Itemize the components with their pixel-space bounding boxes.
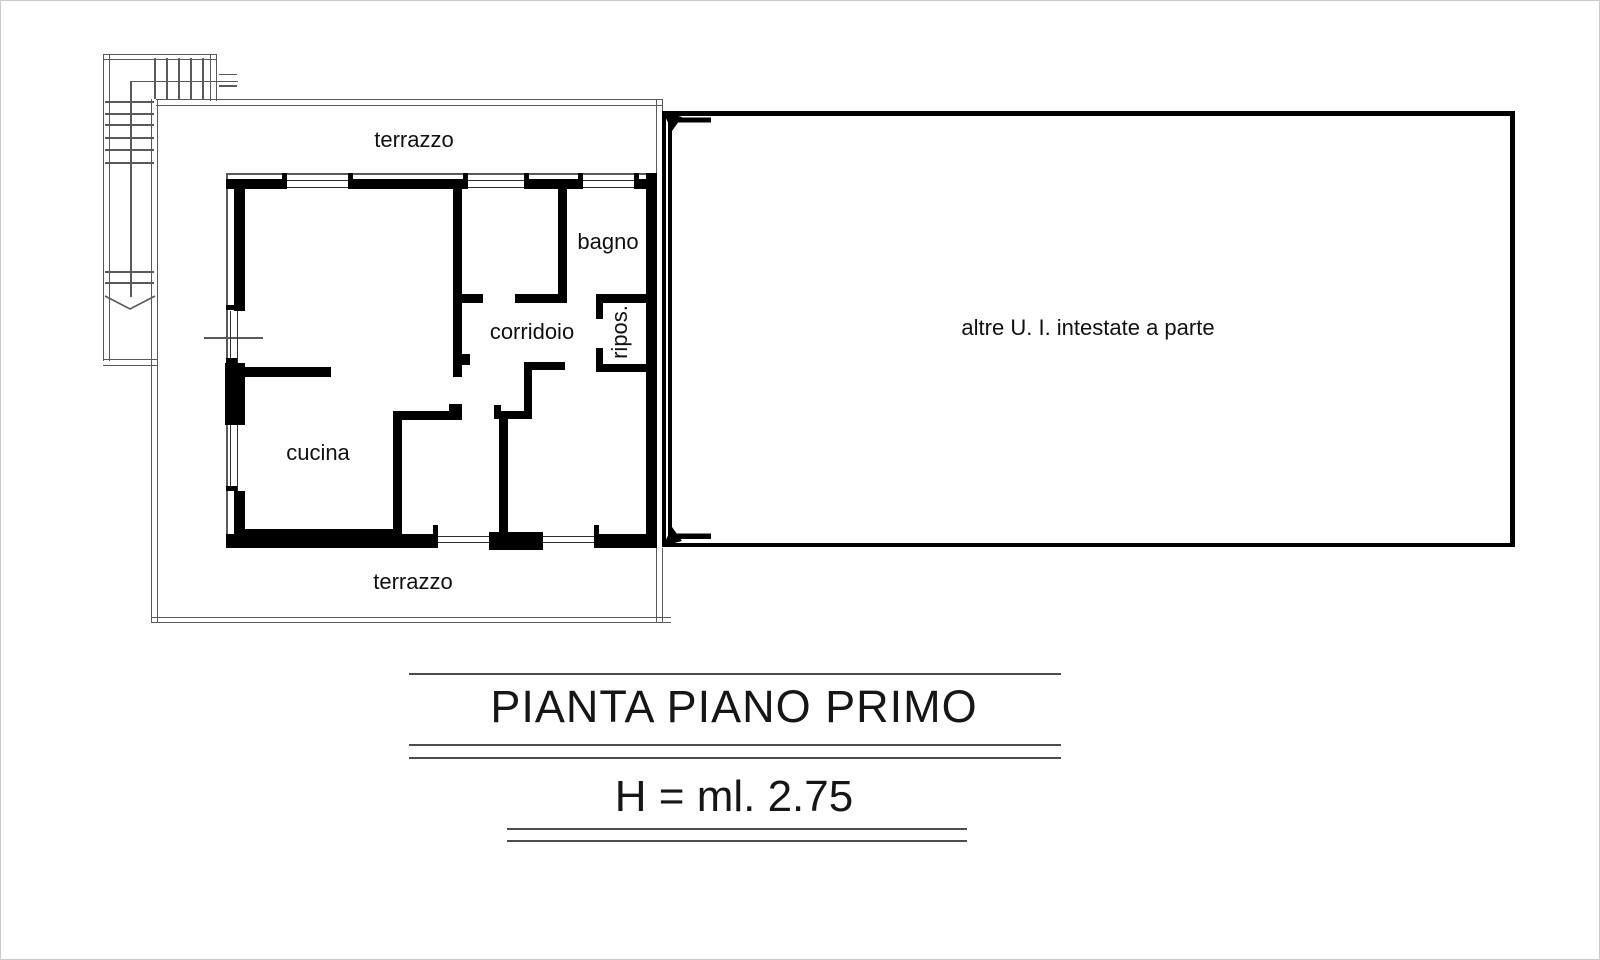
window-jamb	[634, 173, 639, 179]
wall-room1-north	[393, 411, 462, 420]
door-jamb	[433, 525, 438, 534]
door-threshold	[438, 536, 489, 543]
window-jamb	[226, 486, 237, 491]
stair-outline-bottom	[103, 359, 157, 366]
window-jamb	[348, 173, 353, 179]
door-jamb	[594, 525, 599, 534]
title-rule	[409, 744, 1061, 746]
window	[287, 180, 348, 188]
window-jamb	[282, 173, 287, 179]
terrace-boundary-bottom	[152, 617, 671, 624]
window-jamb	[524, 173, 529, 179]
room-label-terrazzo-top: terrazzo	[374, 127, 453, 153]
wall	[348, 179, 468, 189]
wall-inner-lip	[238, 529, 393, 535]
adjacent-units-label: altre U. I. intestate a parte	[961, 315, 1214, 341]
adjacent-bottom-edge	[662, 543, 1514, 548]
door-jamb	[462, 354, 470, 365]
terrace-boundary-top	[156, 99, 662, 106]
height-note: H = ml. 2.75	[615, 772, 853, 822]
wall-pier	[489, 532, 543, 550]
stair-walk-line-vertical	[130, 81, 132, 297]
stair-tread	[202, 58, 204, 99]
window-jamb	[226, 420, 237, 425]
stair-outline-right-upper	[210, 54, 217, 101]
wall-room1-west	[393, 420, 402, 534]
wall-livingroom-east	[453, 187, 462, 377]
storage-door-jamb-top	[596, 303, 603, 319]
wall-kitchen-north	[238, 367, 331, 377]
title-rule	[409, 673, 1061, 675]
terrace-boundary-right-lower	[656, 548, 663, 623]
window	[230, 425, 238, 491]
wall	[226, 534, 438, 548]
height-rule	[507, 828, 967, 830]
stair-outline-top	[103, 54, 216, 60]
stair-tread	[190, 58, 192, 99]
window-jamb	[463, 173, 468, 179]
door-jamb	[494, 405, 501, 412]
wall	[594, 534, 657, 548]
wall-bathroom-west	[558, 187, 567, 303]
terrace-boundary-left	[151, 99, 158, 623]
floor-plan-canvas: terrazzo bagno corridoio ripos. cucina t…	[0, 0, 1600, 960]
stair-walk-line-horizontal	[130, 81, 238, 83]
wall	[234, 179, 245, 311]
wall-storage-south	[596, 364, 646, 372]
wall	[524, 179, 583, 189]
window-jamb	[226, 358, 237, 363]
stair-start-tick	[219, 85, 237, 87]
door-jamb	[449, 404, 462, 411]
room-label-ripostiglio: ripos.	[607, 305, 633, 359]
window	[230, 311, 238, 363]
stair-tread	[154, 58, 156, 99]
adjacent-left-edge-inner	[662, 111, 666, 547]
wall-bedroom2-west-lower	[499, 419, 508, 534]
wall-bathroom-south	[596, 294, 646, 303]
wall	[646, 173, 657, 548]
window-jamb	[226, 305, 237, 310]
title-rule	[409, 757, 1061, 759]
wall-bedroom2-west-stub	[494, 411, 532, 419]
room-label-bagno: bagno	[577, 229, 638, 255]
adjacent-top-edge	[662, 111, 1514, 116]
room-label-terrazzo-bottom: terrazzo	[373, 569, 452, 595]
room-label-corridoio: corridoio	[490, 319, 574, 345]
room-label-cucina: cucina	[286, 440, 350, 466]
wall-corridor-north-west-stub	[453, 294, 483, 303]
drawing-title: PIANTA PIANO PRIMO	[490, 681, 977, 733]
window-jamb	[578, 173, 583, 179]
stair-break-chevron	[105, 296, 155, 309]
wall-face-top	[226, 173, 657, 175]
stair-start-tick	[219, 74, 237, 76]
stair-tread	[166, 58, 168, 99]
stair-tread	[178, 58, 180, 99]
door-threshold	[543, 536, 594, 543]
height-rule	[507, 840, 967, 842]
adjacent-left-edge-outer	[668, 111, 672, 547]
adjacent-right-edge	[1510, 111, 1515, 547]
storage-door-jamb-bottom	[596, 348, 603, 364]
window	[583, 180, 634, 188]
window	[468, 180, 524, 188]
